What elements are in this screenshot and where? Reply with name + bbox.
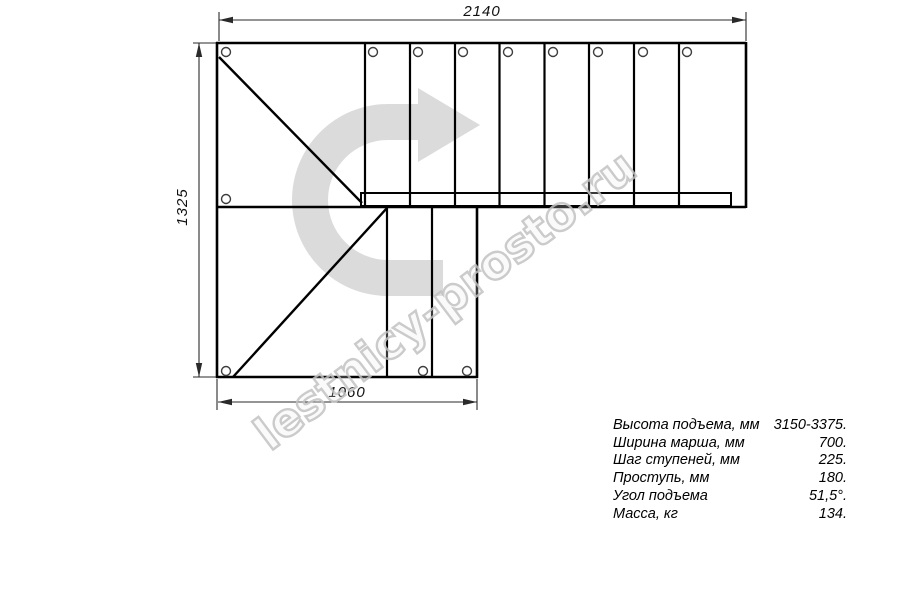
specs-table: Высота подъема, мм 3150-3375. Ширина мар… bbox=[613, 417, 847, 523]
dimension-arrow bbox=[218, 399, 232, 405]
specs-row: Масса, кг 134. bbox=[613, 506, 847, 524]
hole-circle bbox=[504, 48, 513, 57]
dimension-arrow bbox=[463, 399, 477, 405]
hole-circle bbox=[549, 48, 558, 57]
spec-value: 180. bbox=[777, 470, 847, 488]
specs-row: Угол подъема 51,5°. bbox=[613, 488, 847, 506]
spec-value: 134. bbox=[777, 506, 847, 524]
hole-circle bbox=[683, 48, 692, 57]
spec-value: 225. bbox=[777, 452, 847, 470]
hole-circle bbox=[463, 367, 472, 376]
hole-circle bbox=[459, 48, 468, 57]
specs-row: Проступь, мм 180. bbox=[613, 470, 847, 488]
dimension-left bbox=[193, 43, 216, 377]
dimension-top-value: 2140 bbox=[462, 3, 500, 20]
hole-circle bbox=[639, 48, 648, 57]
spec-label: Угол подъема bbox=[613, 488, 708, 506]
dimension-arrow bbox=[196, 363, 202, 377]
spec-value: 3150-3375. bbox=[774, 417, 847, 435]
stringer-bar bbox=[361, 193, 731, 206]
hole-circle bbox=[369, 48, 378, 57]
staircase-drawing-page: { "drawing": { "type": "l-shaped-stairca… bbox=[0, 0, 900, 600]
spec-label: Масса, кг bbox=[613, 506, 678, 524]
hole-circle bbox=[222, 48, 231, 57]
specs-row: Ширина марша, мм 700. bbox=[613, 435, 847, 453]
specs-row: Высота подъема, мм 3150-3375. bbox=[613, 417, 847, 435]
spec-label: Проступь, мм bbox=[613, 470, 709, 488]
hole-circle bbox=[594, 48, 603, 57]
hole-circle bbox=[222, 195, 231, 204]
fastener-holes bbox=[222, 48, 692, 376]
hole-circle bbox=[419, 367, 428, 376]
spec-label: Шаг ступеней, мм bbox=[613, 452, 740, 470]
spec-value: 51,5°. bbox=[777, 488, 847, 506]
dimension-arrow bbox=[219, 17, 233, 23]
dimension-bottom-value: 1060 bbox=[328, 384, 365, 401]
spec-label: Ширина марша, мм bbox=[613, 435, 745, 453]
hole-circle bbox=[222, 367, 231, 376]
dimension-left-value: 1325 bbox=[174, 188, 191, 225]
spec-label: Высота подъема, мм bbox=[613, 417, 760, 435]
dimension-arrow bbox=[732, 17, 746, 23]
specs-row: Шаг ступеней, мм 225. bbox=[613, 452, 847, 470]
hole-circle bbox=[414, 48, 423, 57]
dimension-arrow bbox=[196, 43, 202, 57]
spec-value: 700. bbox=[777, 435, 847, 453]
